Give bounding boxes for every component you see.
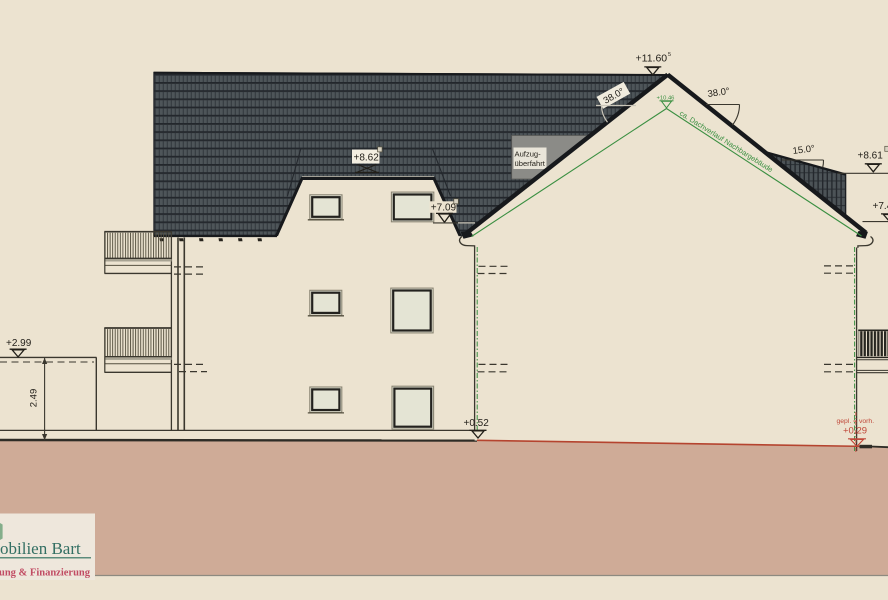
svg-text:+0.29: +0.29 [843, 426, 867, 437]
svg-text:+7.09: +7.09 [431, 203, 457, 214]
svg-text:2.49: 2.49 [29, 389, 40, 408]
svg-text:Aufzug-: Aufzug- [515, 149, 542, 158]
svg-text:obilien Bart: obilien Bart [0, 539, 81, 558]
svg-text:gepl. = vorh.: gepl. = vorh. [837, 418, 875, 425]
svg-text:+10.46: +10.46 [657, 96, 675, 102]
svg-text:+8.62: +8.62 [354, 153, 380, 164]
svg-text:5: 5 [668, 52, 671, 58]
svg-text:ung & Finanzierung: ung & Finanzierung [0, 568, 91, 579]
svg-text:+2.99: +2.99 [6, 338, 32, 349]
svg-text:+7.4: +7.4 [873, 201, 888, 212]
svg-text:+8.61: +8.61 [858, 151, 884, 162]
svg-text:überfahrt: überfahrt [515, 159, 546, 168]
svg-text:+11.60: +11.60 [636, 53, 668, 65]
svg-text:+0.52: +0.52 [464, 418, 490, 429]
